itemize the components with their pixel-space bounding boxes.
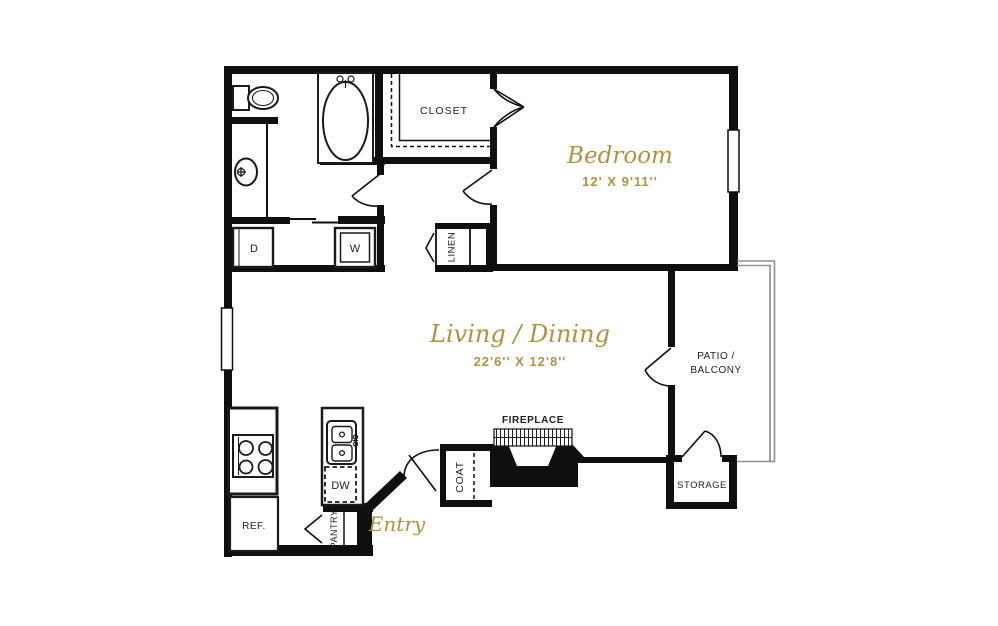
refrigerator-label: REF. <box>242 521 266 532</box>
dishwasher-label: DW <box>331 480 350 492</box>
wall-coat-left <box>440 444 446 507</box>
closet-label: CLOSET <box>420 105 468 117</box>
wall-bedroom-bottom <box>490 264 738 271</box>
bedroom-dims: 12' X 9'11'' <box>582 174 658 189</box>
coat-label: COAT <box>454 461 466 493</box>
bedroom-door <box>463 170 492 204</box>
patio-label-line2: BALCONY <box>690 365 741 376</box>
wall-laundry-top-left <box>228 217 290 224</box>
living-name: Living / Dining <box>429 320 610 348</box>
living-dims: 22'6'' X 12'8'' <box>474 354 567 369</box>
wall-patio-lower <box>668 385 675 462</box>
fireplace-label: FIREPLACE <box>502 415 564 426</box>
floor-plan: CLOSET Bedroom 12' X 9'11'' Living / Din… <box>0 0 998 626</box>
storage-door <box>682 431 721 457</box>
wall-bedroom-west-b <box>490 127 497 169</box>
linen-door <box>426 233 434 262</box>
wall-entry-diagonal <box>364 471 407 512</box>
bathroom-door <box>352 174 380 206</box>
wall-bedroom-west-a <box>490 73 497 89</box>
linen-label: LINEN <box>447 232 458 262</box>
wall-toilet-nook <box>231 117 278 124</box>
wall-bath-east-jamb <box>377 163 384 175</box>
wall-coat-top <box>440 444 492 451</box>
bathroom-fixtures <box>233 73 373 186</box>
dryer-label: D <box>250 243 258 255</box>
patio-rail-outer <box>737 261 775 462</box>
living-window <box>222 308 233 370</box>
wall-storage-bottom <box>666 502 737 509</box>
floor-plan-svg: CLOSET Bedroom 12' X 9'11'' Living / Din… <box>0 0 998 626</box>
closet-bifold-door <box>494 89 524 127</box>
bedroom-window <box>728 130 739 192</box>
wall-storage-left <box>666 455 674 509</box>
wall-linen-right <box>486 223 493 272</box>
wall-patio-upper <box>668 271 675 347</box>
entry-name: Entry <box>368 512 426 536</box>
exterior-walls <box>224 66 738 557</box>
wall-linen-top <box>435 223 493 229</box>
patio-rail <box>737 261 775 462</box>
pantry-door <box>305 515 322 543</box>
storage-label: STORAGE <box>677 480 727 491</box>
bedroom-name: Bedroom <box>566 143 673 169</box>
toilet <box>233 86 278 110</box>
wall-storage-top-right <box>722 455 737 462</box>
wall-top <box>224 66 738 74</box>
wall-bath-east-lower <box>377 205 384 272</box>
fireplace-structure <box>490 429 584 487</box>
patio-door <box>645 348 671 386</box>
wall-bath-closet-divider <box>375 73 383 159</box>
stove <box>233 435 273 477</box>
wall-closet-bottom <box>383 157 497 164</box>
patio-label-line1: PATIO / <box>697 351 735 362</box>
vanity-sink <box>235 159 257 186</box>
wall-coat-bottom <box>440 500 492 507</box>
washer-label: W <box>350 243 361 255</box>
wall-living-south-thin <box>578 457 672 463</box>
wall-linen-bottom <box>435 265 493 272</box>
kitchen-sink <box>327 421 358 464</box>
patio-rail-inner <box>737 266 770 462</box>
wall-storage-right <box>729 455 737 509</box>
pantry-label: PANTRY <box>329 510 339 549</box>
bathtub <box>318 73 373 163</box>
entry-door <box>404 450 439 491</box>
